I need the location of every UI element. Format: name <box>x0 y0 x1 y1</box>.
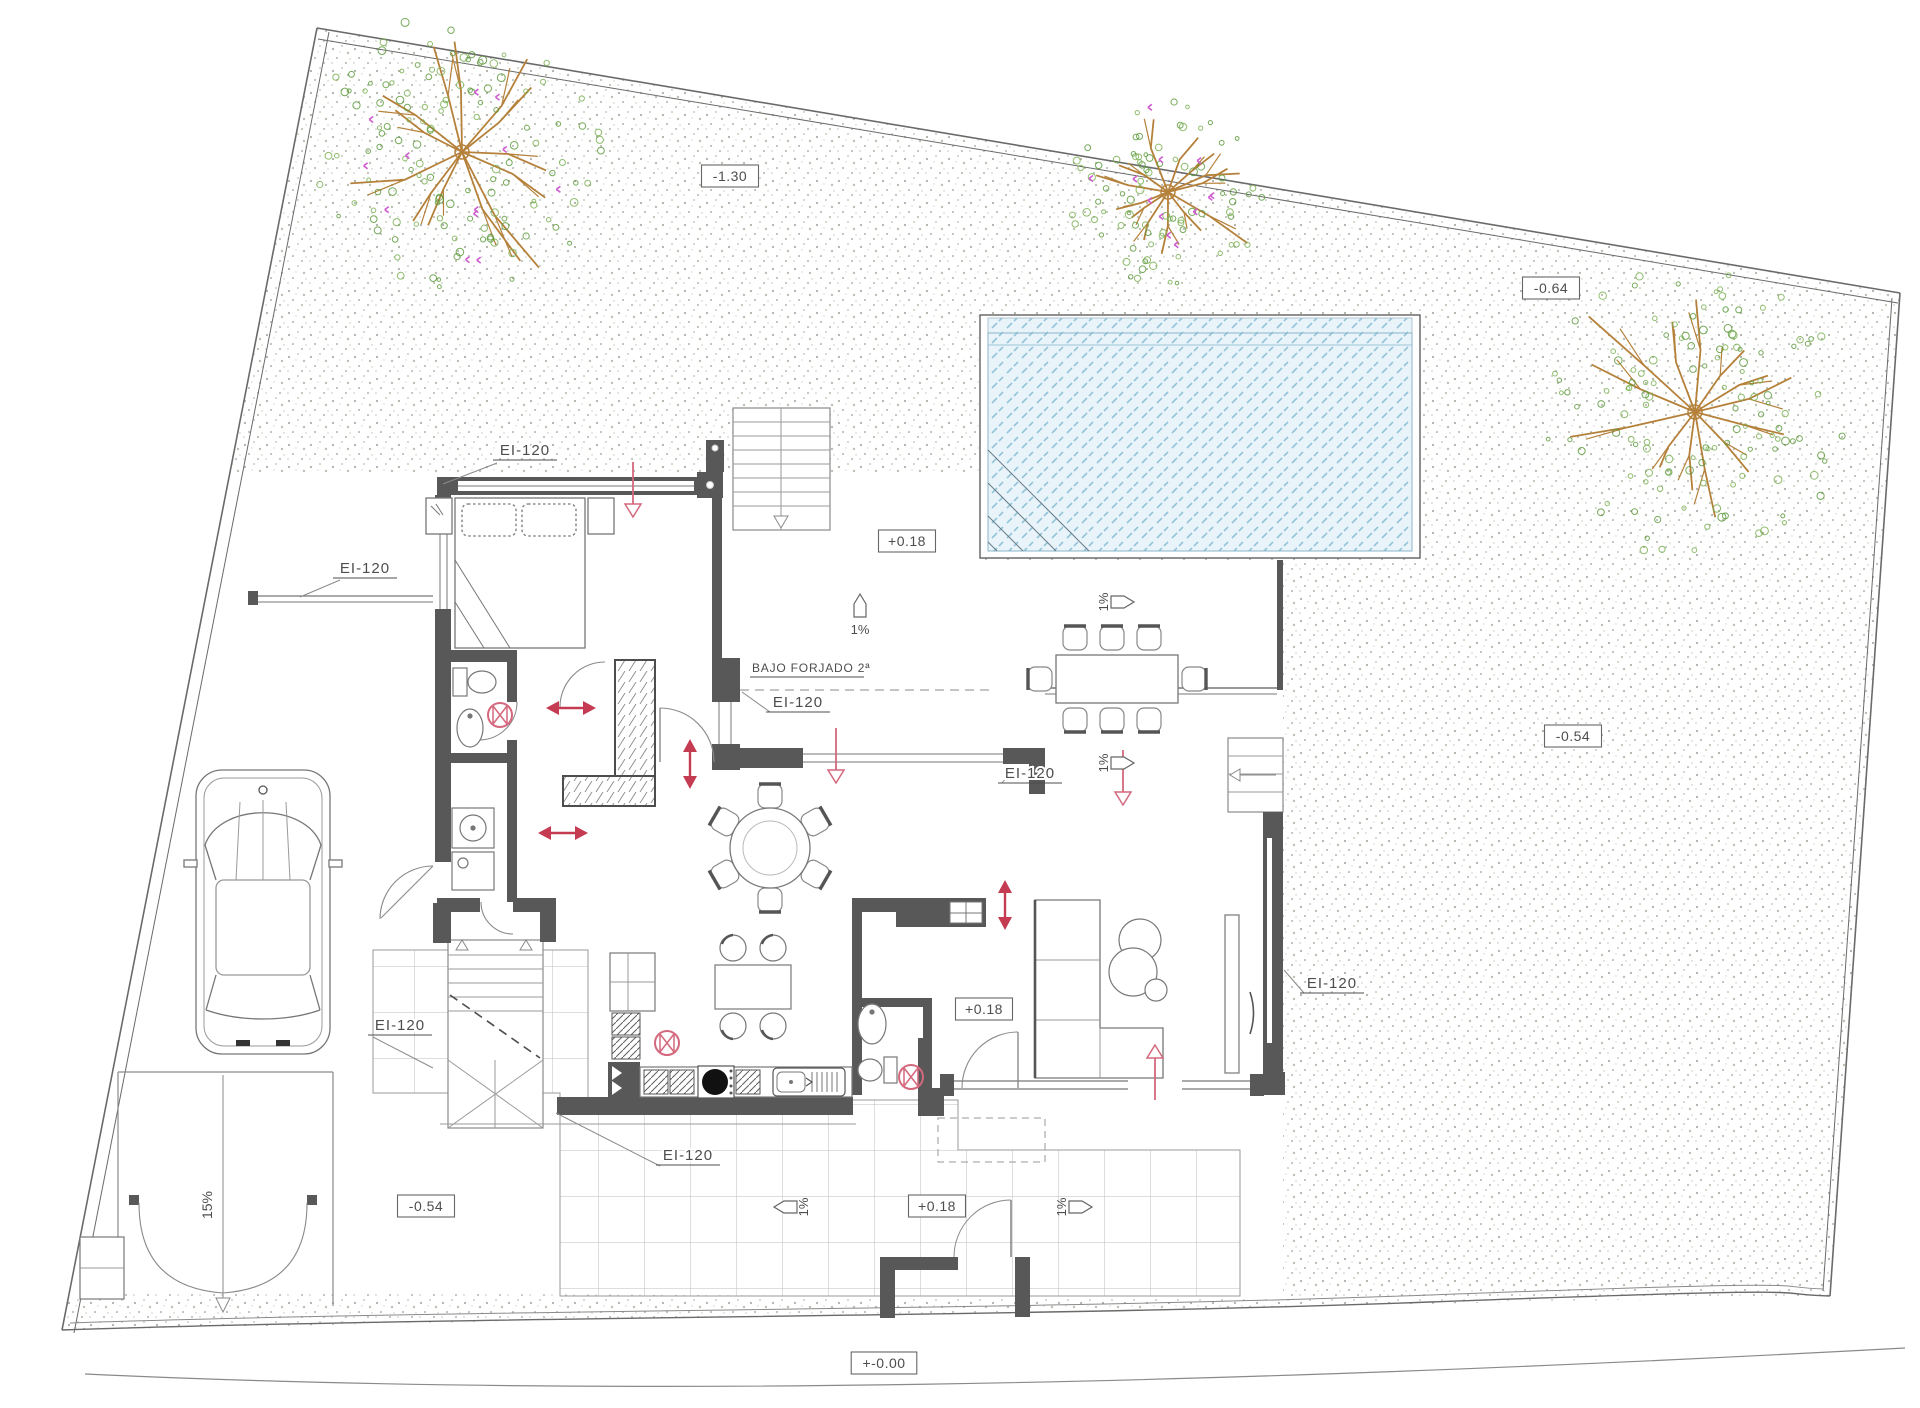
east-terrace-stairs <box>1228 738 1283 812</box>
svg-text:1%: 1% <box>796 1197 811 1216</box>
svg-text:-0.54: -0.54 <box>1556 728 1590 744</box>
toilet-bowl <box>858 1059 882 1081</box>
dryer <box>452 852 494 890</box>
svg-text:EI-120: EI-120 <box>663 1147 713 1164</box>
svg-text:EI-120: EI-120 <box>340 560 390 577</box>
flower-icon <box>1148 104 1152 110</box>
toilet-tank <box>453 668 467 696</box>
car <box>184 770 342 1054</box>
street-curb <box>85 1348 1905 1386</box>
elevation-marker: +0.18 <box>879 530 936 552</box>
toilet-tank <box>884 1057 897 1083</box>
southwest-stairs <box>448 940 543 1128</box>
swimming-pool <box>980 315 1420 558</box>
north-exterior-stairs <box>733 408 830 530</box>
svg-text:1%: 1% <box>1054 1197 1069 1216</box>
svg-text:-0.54: -0.54 <box>409 1198 443 1214</box>
svg-text:EI-120: EI-120 <box>375 1017 425 1034</box>
elevation-marker: +0.18 <box>956 998 1013 1020</box>
nightstand-left <box>426 498 452 534</box>
svg-text:+0.18: +0.18 <box>888 533 926 549</box>
svg-text:-1.30: -1.30 <box>713 168 747 184</box>
svg-text:+0.18: +0.18 <box>965 1001 1003 1017</box>
elevation-marker: -0.54 <box>1545 725 1602 747</box>
elevation-marker: -0.54 <box>398 1195 455 1217</box>
svg-text:1%: 1% <box>1096 753 1111 772</box>
elevation-marker: +0.18 <box>909 1195 966 1217</box>
toilet-bowl <box>468 671 496 693</box>
svg-text:-0.64: -0.64 <box>1534 280 1568 296</box>
svg-text:EI-120: EI-120 <box>500 442 550 459</box>
elevation-marker: -0.64 <box>1523 277 1580 299</box>
ramp-slope-label: 15% <box>199 1191 215 1219</box>
svg-text:1%: 1% <box>851 622 870 637</box>
fire-rating-label: EI-120 <box>998 765 1062 783</box>
svg-text:+-0.00: +-0.00 <box>862 1355 905 1371</box>
svg-text:EI-120: EI-120 <box>773 694 823 711</box>
svg-text:1%: 1% <box>1096 592 1111 611</box>
tv-unit <box>1225 915 1239 1073</box>
plan-note: BAJO FORJADO 2ª <box>750 661 870 677</box>
utility-box <box>80 1237 124 1299</box>
pool-infinity-edge <box>988 318 1412 333</box>
floor-plan-page: EI-120EI-120EI-120EI-120EI-120EI-120EI-1… <box>0 0 1920 1408</box>
svg-text:EI-120: EI-120 <box>1005 765 1055 782</box>
svg-text:+0.18: +0.18 <box>918 1198 956 1214</box>
svg-text:BAJO FORJADO 2ª: BAJO FORJADO 2ª <box>752 661 870 675</box>
site-plan-drawing: EI-120EI-120EI-120EI-120EI-120EI-120EI-1… <box>0 0 1920 1408</box>
svg-text:15%: 15% <box>199 1191 215 1219</box>
nightstand-right <box>588 498 614 534</box>
elevation-marker: -1.30 <box>702 165 759 187</box>
flower-icon <box>1159 157 1163 163</box>
elevation-marker: +-0.00 <box>851 1352 917 1374</box>
svg-text:EI-120: EI-120 <box>1307 975 1357 992</box>
pool-water <box>988 333 1412 551</box>
